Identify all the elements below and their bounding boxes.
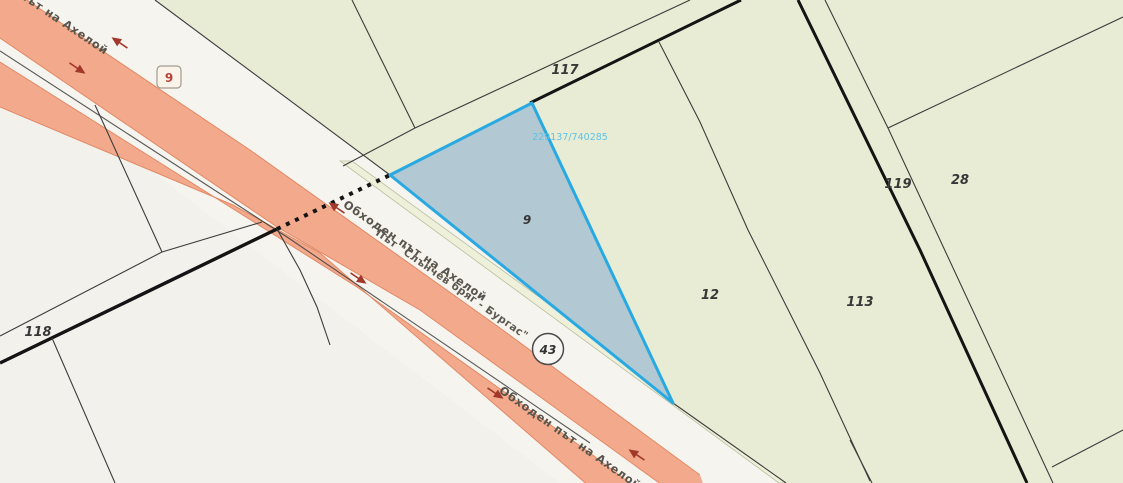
- cadastral-map-viewport[interactable]: Обходен път на Ахелой Обходен път на Ахе…: [0, 0, 1123, 483]
- parcel-label-28: 28: [951, 173, 969, 188]
- parcel-label-113: 113: [846, 295, 873, 310]
- parcel-label-117: 117: [551, 63, 579, 78]
- selected-parcel-id: 229137/740285: [532, 132, 608, 143]
- road-number-badge: 9: [157, 66, 181, 88]
- road-number-badge-label: 9: [165, 71, 173, 85]
- selected-parcel-number: 9: [523, 213, 531, 227]
- parcel-label-119: 119: [884, 177, 911, 192]
- parcel-label-12: 12: [701, 288, 719, 303]
- survey-point-label: 43: [539, 343, 557, 357]
- parcel-label-118: 118: [24, 325, 51, 340]
- cadastral-map-canvas[interactable]: Обходен път на Ахелой Обходен път на Ахе…: [0, 0, 1123, 483]
- survey-point-marker: 43: [533, 334, 564, 365]
